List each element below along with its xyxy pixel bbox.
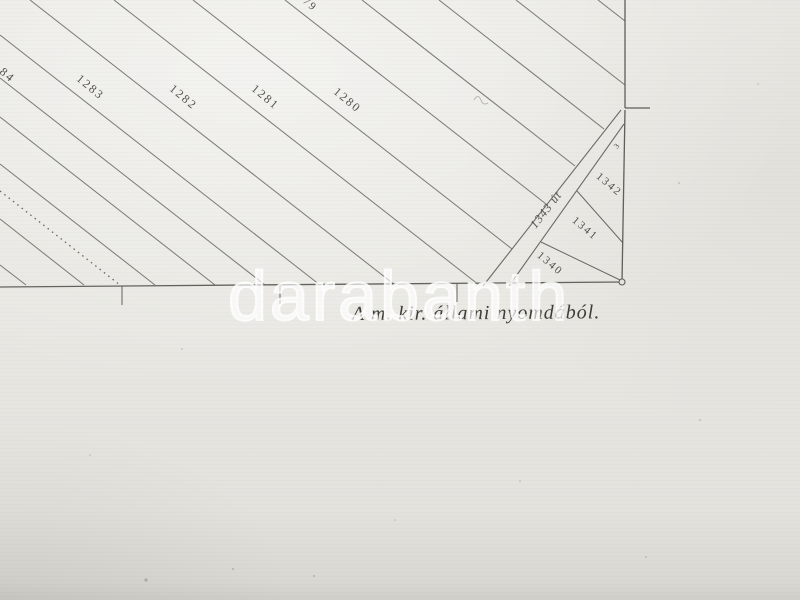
boundary-line — [0, 282, 622, 287]
paper-specks — [89, 83, 759, 582]
border-lines — [622, 0, 650, 282]
road-label: 1343 út — [527, 188, 565, 231]
parcel-label: 79 — [300, 0, 319, 14]
parcel-label: 84 — [0, 64, 18, 85]
map-drawing: 8412831282128112807913421341134031343 út — [0, 0, 800, 600]
paper-squiggle — [474, 97, 488, 105]
parcel-label: 1281 — [249, 81, 283, 112]
parcel-label: 1282 — [167, 81, 201, 112]
parcel-label: 1340 — [535, 249, 566, 277]
parcel-label: 1283 — [74, 71, 108, 102]
parcel-label: 3 — [612, 140, 623, 150]
parcel-label: 1342 — [594, 170, 625, 198]
hatch-lines — [0, 0, 625, 285]
border-right-edge — [622, 110, 625, 282]
survey-point-marker — [619, 279, 625, 285]
dotted-boundary-line — [0, 191, 120, 285]
parcel-labels-layer: 8412831282128112807913421341134031343 út — [0, 0, 624, 278]
scanned-map-photo: 8412831282128112807913421341134031343 út… — [0, 0, 800, 600]
parcel-label: 1341 — [570, 214, 601, 242]
printing-house-caption: A m. kir. állami nyomdából. — [352, 301, 652, 326]
